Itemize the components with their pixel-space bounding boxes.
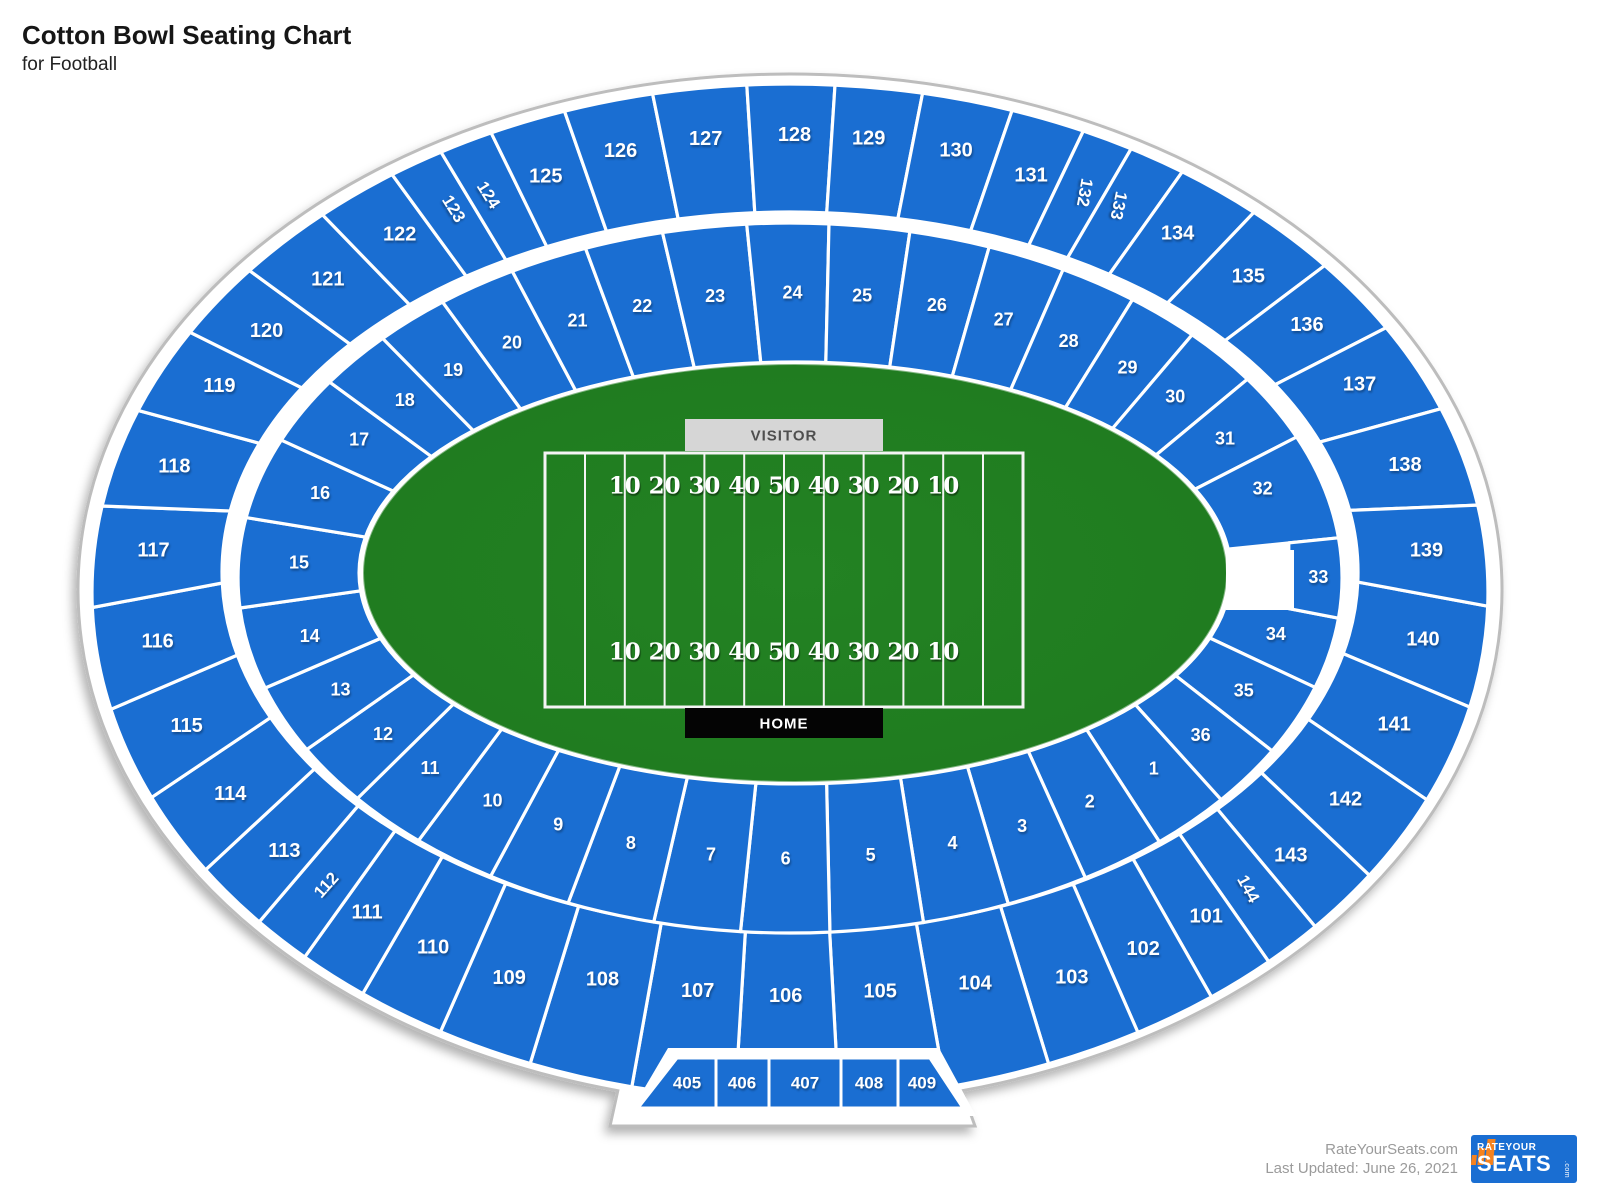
section-label: 108 xyxy=(586,969,619,991)
yard-number: 10 xyxy=(609,639,641,666)
section-label: 118 xyxy=(158,456,190,478)
section-label: 135 xyxy=(1232,266,1265,288)
footer-source: RateYourSeats.com xyxy=(1265,1140,1458,1159)
yard-number: 10 xyxy=(609,473,641,500)
section-label: 6 xyxy=(781,849,791,869)
section-label: 140 xyxy=(1406,629,1439,651)
section-label: 119 xyxy=(203,375,235,397)
yard-number: 40 xyxy=(808,639,840,666)
section-label: 32 xyxy=(1253,479,1273,499)
yard-number: 40 xyxy=(728,473,760,500)
section-label: 105 xyxy=(864,980,897,1002)
section-label: 122 xyxy=(383,224,416,246)
section-label: 117 xyxy=(137,540,169,562)
section-label: 36 xyxy=(1191,725,1211,745)
section-label: 113 xyxy=(268,840,300,862)
section-label: 22 xyxy=(632,296,652,316)
section-label: 116 xyxy=(141,631,173,653)
section-label: 104 xyxy=(958,973,992,995)
section-label: 30 xyxy=(1165,387,1185,407)
section-label: 31 xyxy=(1215,429,1235,449)
yard-number: 10 xyxy=(927,473,959,500)
visitor-label: VISITOR xyxy=(751,428,818,445)
page-subtitle: for Football xyxy=(22,54,117,76)
section-label: 409 xyxy=(908,1074,936,1093)
section-label: 23 xyxy=(705,286,725,306)
section-label: 111 xyxy=(352,901,383,923)
section-label: 120 xyxy=(250,320,283,342)
section-label: 130 xyxy=(939,139,972,161)
section-label: 141 xyxy=(1378,714,1411,736)
section-label: 139 xyxy=(1410,540,1443,562)
section-label: 129 xyxy=(852,128,885,150)
section-label: 24 xyxy=(782,283,802,303)
section-label: 125 xyxy=(529,165,562,187)
yard-number: 40 xyxy=(728,639,760,666)
section-label: 19 xyxy=(443,360,463,380)
section-label: 142 xyxy=(1329,788,1362,810)
home-label: HOME xyxy=(760,716,809,733)
yard-number: 30 xyxy=(688,639,720,666)
logo-seats-text: SEATS xyxy=(1477,1153,1571,1175)
rateyourseats-logo[interactable]: RATEYOUR SEATS .com xyxy=(1471,1135,1577,1183)
section-label: 143 xyxy=(1274,845,1307,867)
yard-number: 20 xyxy=(887,639,919,666)
section-label: 3 xyxy=(1017,816,1027,836)
section-label: 28 xyxy=(1059,331,1079,351)
section-label: 126 xyxy=(604,140,637,162)
section-label: 25 xyxy=(852,285,872,305)
section-label: 26 xyxy=(927,295,947,315)
section-label: 7 xyxy=(706,845,716,865)
section-label: 9 xyxy=(553,815,563,835)
section-label: 35 xyxy=(1234,681,1254,701)
yard-number: 20 xyxy=(649,473,681,500)
section-label: 407 xyxy=(791,1074,819,1093)
section-label: 2 xyxy=(1085,792,1095,812)
section-label: 4 xyxy=(947,833,957,853)
section-label: 5 xyxy=(866,845,876,865)
section-label: 102 xyxy=(1127,938,1160,960)
section-label: 408 xyxy=(855,1074,883,1093)
yard-number: 10 xyxy=(927,639,959,666)
section-label: 134 xyxy=(1161,222,1195,244)
section-label: 33 xyxy=(1308,567,1328,587)
section-label: 34 xyxy=(1266,624,1286,644)
yard-number: 40 xyxy=(808,473,840,500)
section-label: 27 xyxy=(994,310,1014,330)
section-label: 20 xyxy=(502,333,522,353)
seating-chart-page: 102030405040302010102030405040302010VISI… xyxy=(0,0,1600,1195)
page-title: Cotton Bowl Seating Chart xyxy=(22,20,351,51)
section-label: 406 xyxy=(728,1074,756,1093)
yard-number: 30 xyxy=(848,639,880,666)
section-label: 21 xyxy=(567,311,587,331)
section-label: 121 xyxy=(311,268,344,290)
section-label: 109 xyxy=(493,967,526,989)
section-label: 137 xyxy=(1343,373,1376,395)
section-label: 12 xyxy=(373,724,393,744)
section-label: 103 xyxy=(1055,967,1088,989)
logo-text: RATEYOUR SEATS .com xyxy=(1477,1143,1571,1175)
section-label: 18 xyxy=(395,390,415,410)
section-label: 138 xyxy=(1388,454,1421,476)
section-label: 106 xyxy=(769,985,802,1007)
section-label: 114 xyxy=(214,783,247,805)
yard-number: 50 xyxy=(768,473,800,500)
yard-number: 50 xyxy=(768,639,800,666)
section-label: 131 xyxy=(1014,165,1047,187)
section-label: 115 xyxy=(170,715,202,737)
section-label: 11 xyxy=(420,758,439,778)
section-label: 8 xyxy=(626,833,636,853)
section-label: 13 xyxy=(330,680,350,700)
section-label: 14 xyxy=(300,626,320,646)
section-label: 1 xyxy=(1149,759,1159,779)
section-label: 29 xyxy=(1117,358,1137,378)
tunnel-gap xyxy=(1226,550,1294,610)
section-label: 15 xyxy=(289,553,309,573)
section-label: 17 xyxy=(349,430,369,450)
section-label: 405 xyxy=(673,1074,701,1093)
section-label: 107 xyxy=(681,980,714,1002)
yard-number: 30 xyxy=(848,473,880,500)
yard-number: 20 xyxy=(887,473,919,500)
stadium-diagram: 102030405040302010102030405040302010VISI… xyxy=(0,0,1600,1195)
section-label: 16 xyxy=(310,483,330,503)
section-label: 136 xyxy=(1290,314,1323,336)
yard-number: 20 xyxy=(649,639,681,666)
section-label: 101 xyxy=(1190,905,1223,927)
footer-updated: Last Updated: June 26, 2021 xyxy=(1265,1159,1458,1178)
section-label: 127 xyxy=(689,128,722,150)
section-label: 128 xyxy=(778,124,811,146)
section-label: 110 xyxy=(417,937,449,959)
yard-number: 30 xyxy=(688,473,720,500)
section-128[interactable] xyxy=(747,84,835,213)
logo-com-text: .com xyxy=(1563,1161,1570,1178)
section-label: 10 xyxy=(482,790,502,810)
footer: RateYourSeats.com Last Updated: June 26,… xyxy=(1265,1140,1458,1178)
